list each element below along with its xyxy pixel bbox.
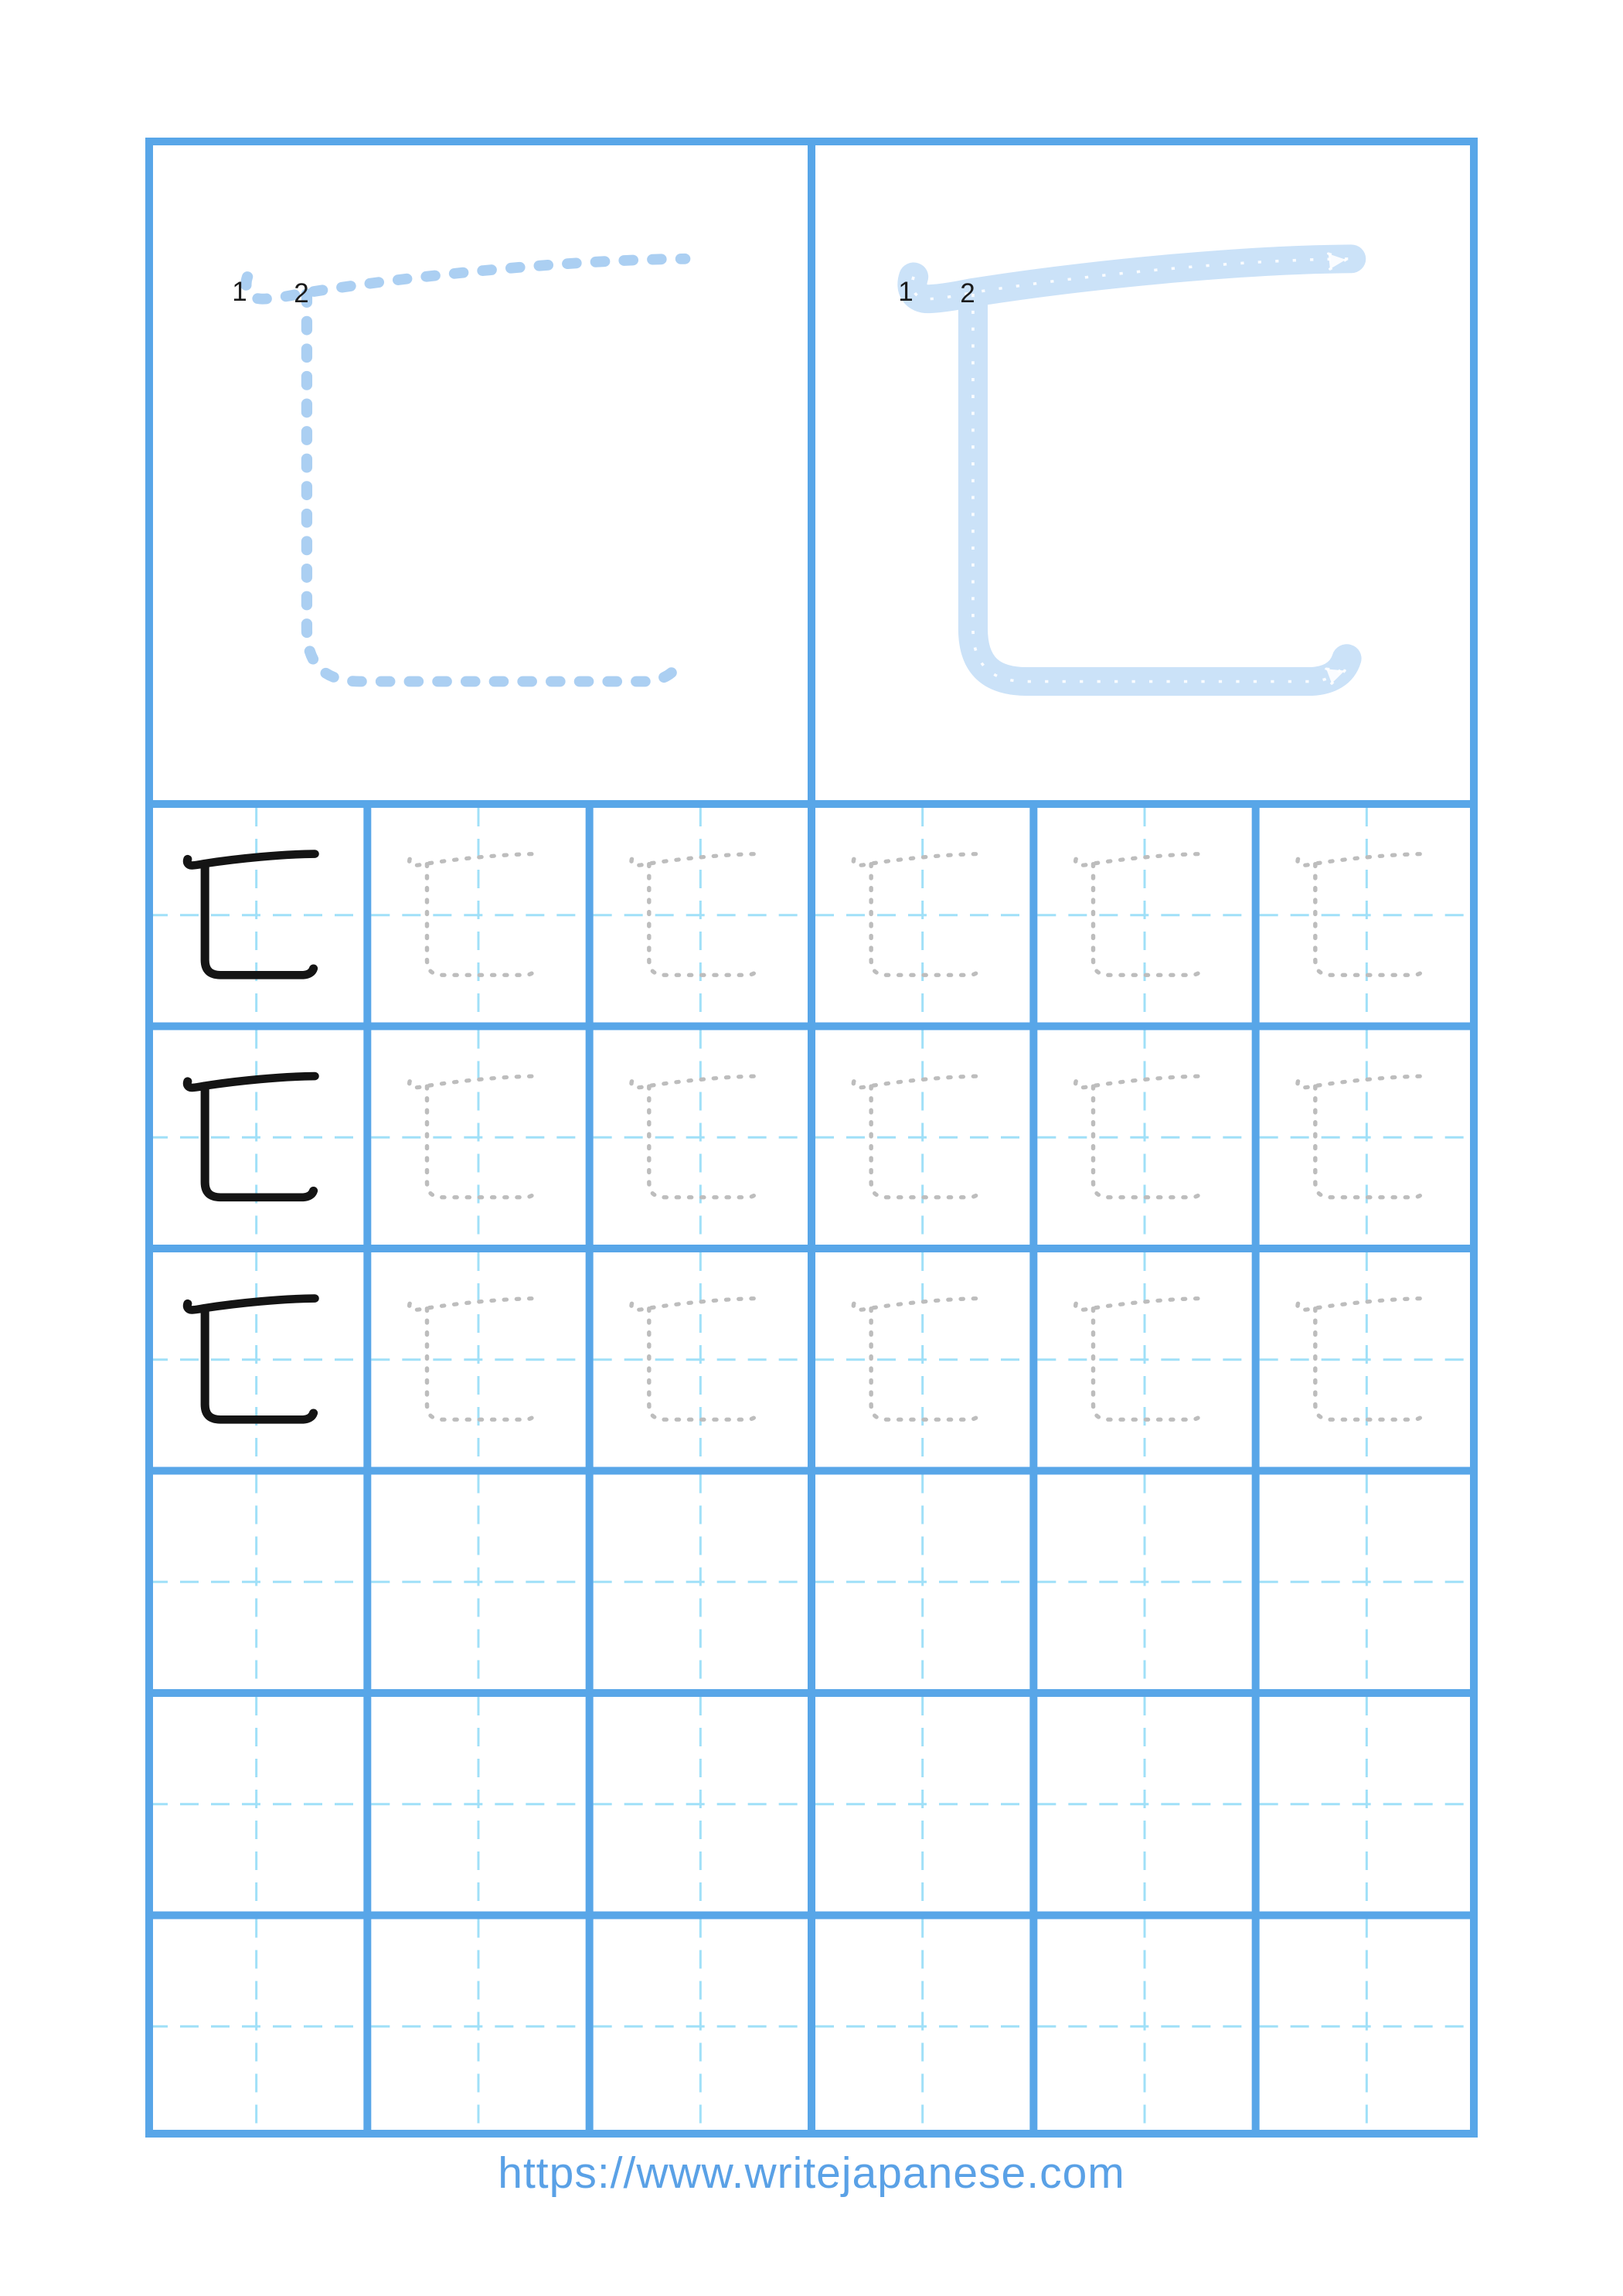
character-stroke-2 bbox=[973, 294, 1347, 681]
tracing-guide-character-band bbox=[912, 259, 1351, 682]
character-stroke-2 bbox=[973, 294, 1347, 681]
character-stroke-2 bbox=[1315, 1309, 1424, 1420]
character-stroke-2 bbox=[427, 1086, 535, 1197]
stroke-number-labels-layer: 1212 bbox=[232, 277, 975, 308]
character-stroke-2 bbox=[871, 864, 979, 976]
character-stroke-2 bbox=[307, 294, 681, 681]
worksheet-canvas: 1212 bbox=[0, 0, 1623, 2296]
worksheet-page: 1212 https://www.writejapanese.com bbox=[0, 0, 1623, 2296]
footer-url: https://www.writejapanese.com bbox=[0, 2148, 1623, 2199]
character-stroke-2 bbox=[1093, 864, 1201, 976]
character-stroke-2 bbox=[427, 1309, 535, 1420]
character-stroke-2 bbox=[427, 864, 535, 976]
character-stroke-2 bbox=[205, 864, 313, 976]
character-stroke-2 bbox=[205, 1309, 313, 1420]
character-stroke-2 bbox=[871, 1309, 979, 1420]
characters-layer bbox=[187, 252, 1425, 1419]
stroke-number-1: 1 bbox=[232, 277, 247, 307]
character-stroke-2 bbox=[205, 1086, 313, 1197]
stroke-number-2-trace: 2 bbox=[960, 278, 975, 308]
character-stroke-2 bbox=[1315, 864, 1424, 976]
stroke-number-1-trace: 1 bbox=[898, 277, 913, 307]
character-stroke-2 bbox=[1093, 1086, 1201, 1197]
character-stroke-2 bbox=[649, 864, 757, 976]
stroke-number-2: 2 bbox=[294, 278, 308, 308]
character-stroke-2 bbox=[871, 1086, 979, 1197]
character-stroke-2 bbox=[1093, 1309, 1201, 1420]
stroke-order-diagram-character bbox=[246, 259, 685, 682]
character-stroke-2 bbox=[1315, 1086, 1424, 1197]
character-stroke-2 bbox=[649, 1086, 757, 1197]
character-stroke-2 bbox=[649, 1309, 757, 1420]
